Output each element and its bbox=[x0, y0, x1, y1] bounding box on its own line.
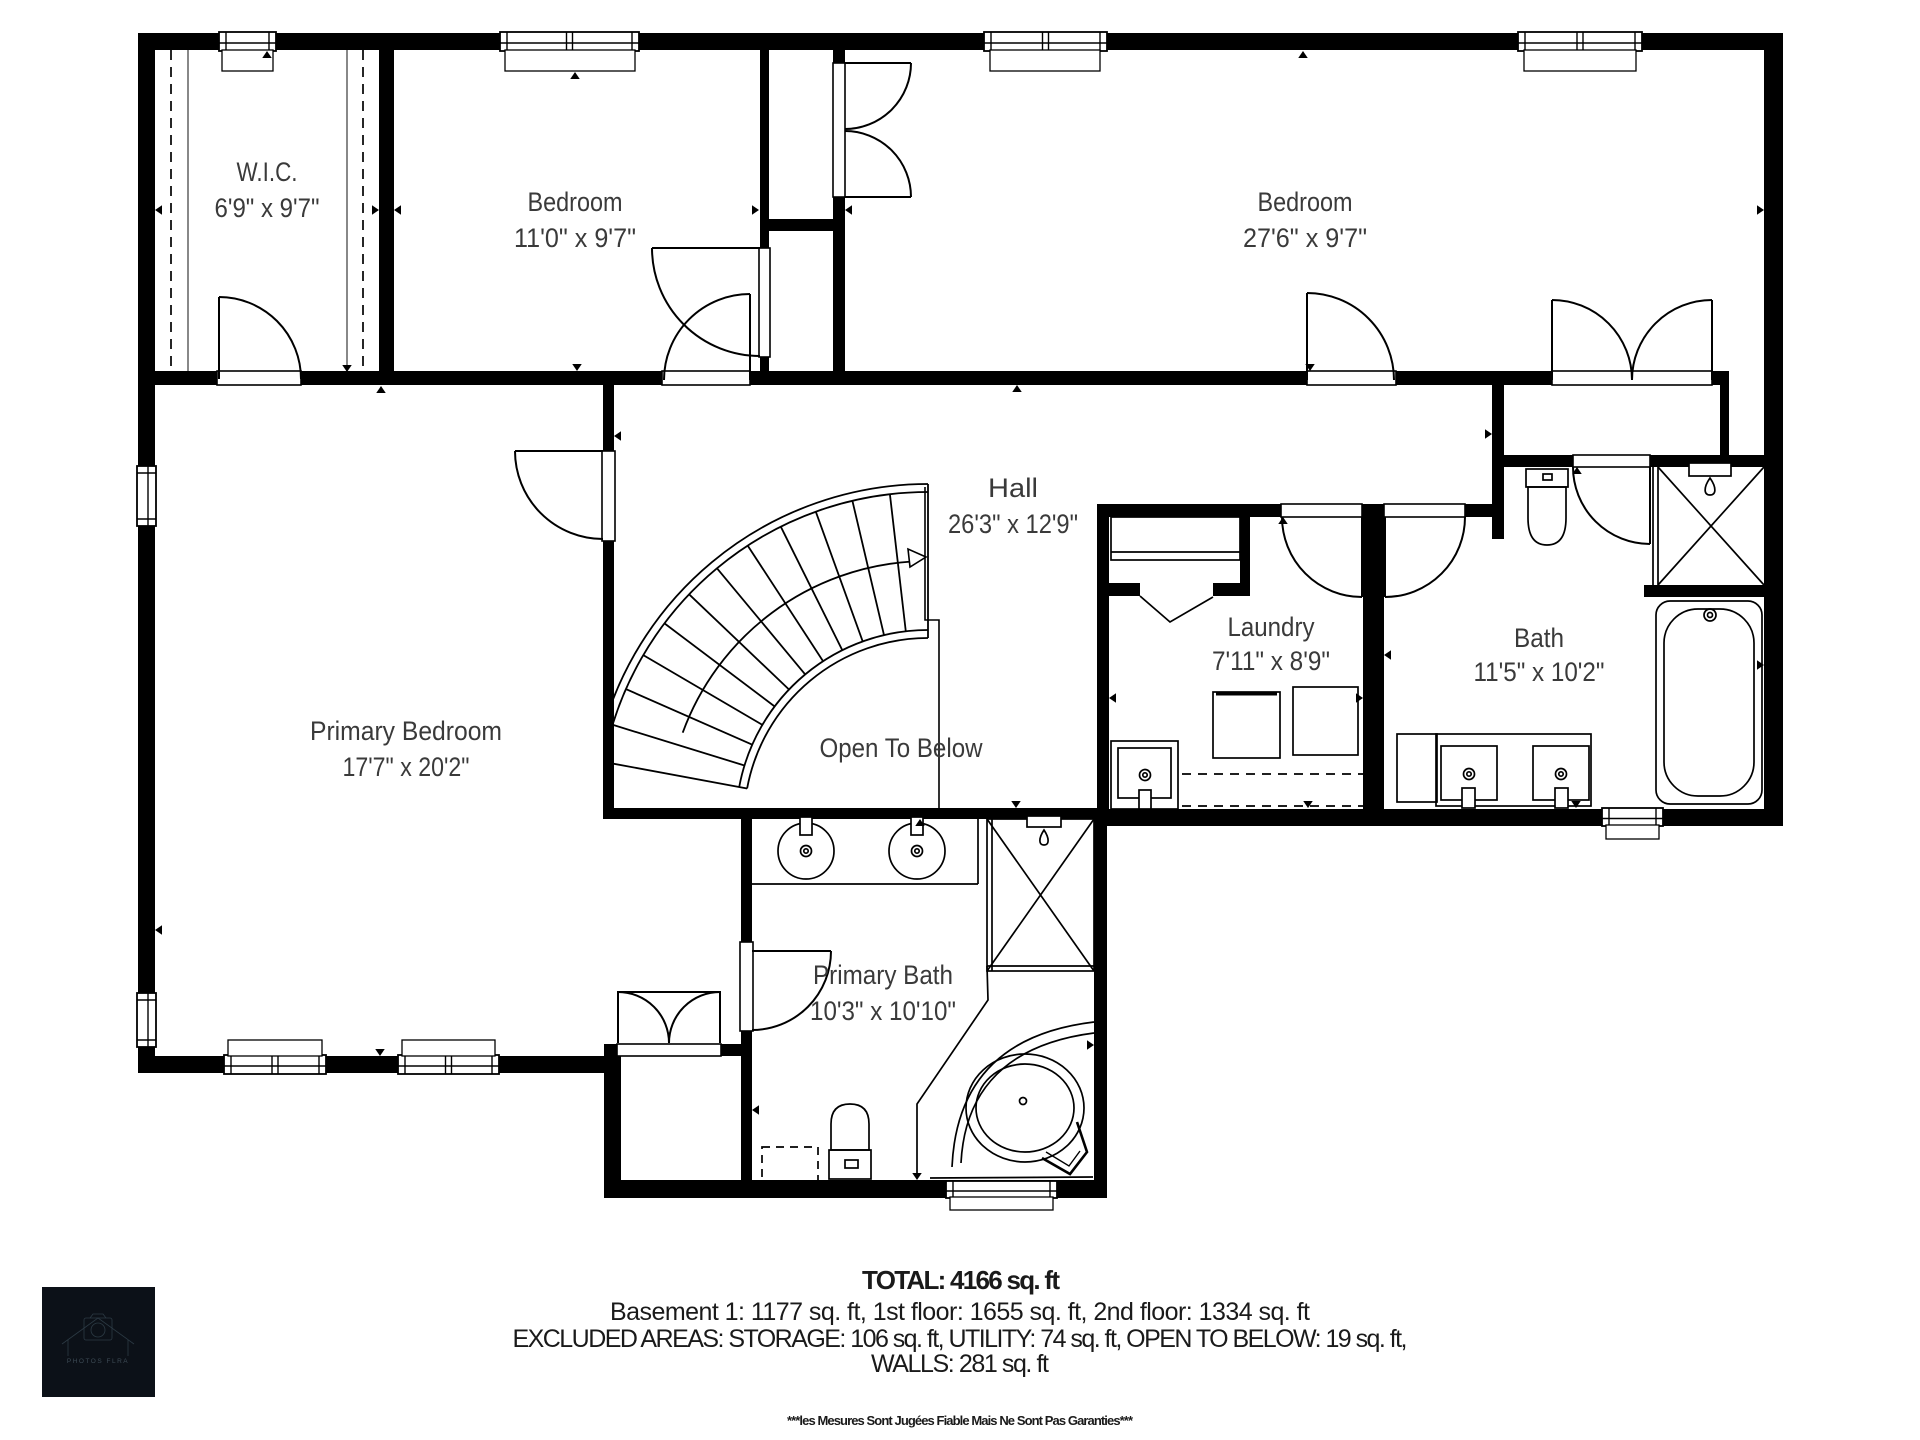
svg-text:Laundry: Laundry bbox=[1228, 612, 1315, 642]
svg-text:6'9" x 9'7": 6'9" x 9'7" bbox=[215, 193, 320, 223]
svg-text:Bedroom: Bedroom bbox=[528, 187, 623, 217]
svg-text:TOTAL: 4166 sq. ft: TOTAL: 4166 sq. ft bbox=[862, 1265, 1060, 1295]
svg-text:WALLS: 281 sq. ft: WALLS: 281 sq. ft bbox=[871, 1350, 1049, 1378]
svg-text:Basement 1: 1177 sq. ft, 1st f: Basement 1: 1177 sq. ft, 1st floor: 1655… bbox=[610, 1298, 1310, 1326]
svg-text:***les Mesures Sont Jugées Fia: ***les Mesures Sont Jugées Fiable Mais N… bbox=[787, 1413, 1134, 1428]
svg-text:17'7" x 20'2": 17'7" x 20'2" bbox=[343, 752, 470, 782]
svg-text:Primary Bath: Primary Bath bbox=[813, 960, 953, 990]
svg-text:Bath: Bath bbox=[1514, 623, 1564, 653]
svg-text:W.I.C.: W.I.C. bbox=[237, 157, 298, 187]
svg-text:PHOTOS FLRA: PHOTOS FLRA bbox=[67, 1358, 129, 1365]
svg-text:Open To Below: Open To Below bbox=[820, 733, 983, 763]
svg-text:EXCLUDED AREAS: STORAGE: 106 s: EXCLUDED AREAS: STORAGE: 106 sq. ft, UTI… bbox=[513, 1325, 1408, 1353]
svg-text:27'6" x 9'7": 27'6" x 9'7" bbox=[1243, 223, 1367, 253]
svg-text:Bedroom: Bedroom bbox=[1258, 187, 1353, 217]
svg-text:7'11" x 8'9": 7'11" x 8'9" bbox=[1212, 646, 1330, 676]
svg-text:11'0" x 9'7": 11'0" x 9'7" bbox=[514, 223, 636, 253]
svg-text:26'3" x 12'9": 26'3" x 12'9" bbox=[948, 509, 1078, 539]
svg-text:10'3" x 10'10": 10'3" x 10'10" bbox=[810, 996, 956, 1026]
svg-text:Primary Bedroom: Primary Bedroom bbox=[310, 716, 502, 746]
svg-text:11'5" x 10'2": 11'5" x 10'2" bbox=[1474, 657, 1605, 687]
svg-text:Hall: Hall bbox=[988, 473, 1038, 503]
